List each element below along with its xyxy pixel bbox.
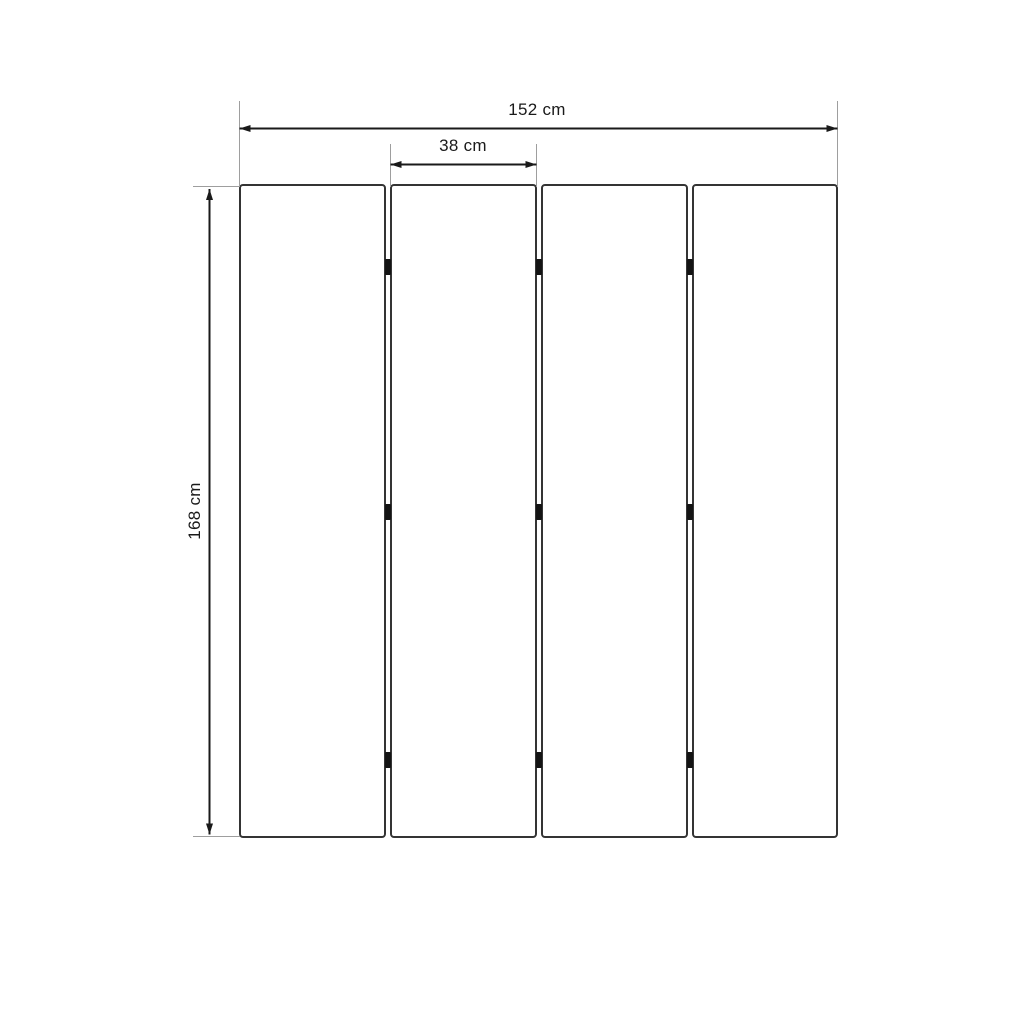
hinge-gap3-top <box>687 259 693 275</box>
hinge-gap1-top <box>385 259 391 275</box>
total-width-label: 152 cm <box>457 100 617 120</box>
hinge-gap2-top <box>536 259 542 275</box>
dimension-diagram: 152 cm 38 cm 168 cm <box>0 0 1024 1024</box>
screen-panel-1 <box>239 184 386 838</box>
hinge-gap1-middle <box>385 504 391 520</box>
hinge-gap2-bottom <box>536 752 542 768</box>
hinge-gap2-middle <box>536 504 542 520</box>
hinge-gap1-bottom <box>385 752 391 768</box>
height-label: 168 cm <box>185 431 207 591</box>
hinge-gap3-middle <box>687 504 693 520</box>
screen-panel-4 <box>692 184 838 838</box>
screen-panel-2 <box>390 184 537 838</box>
panel-width-label: 38 cm <box>393 136 533 156</box>
hinge-gap3-bottom <box>687 752 693 768</box>
screen-panel-3 <box>541 184 688 838</box>
